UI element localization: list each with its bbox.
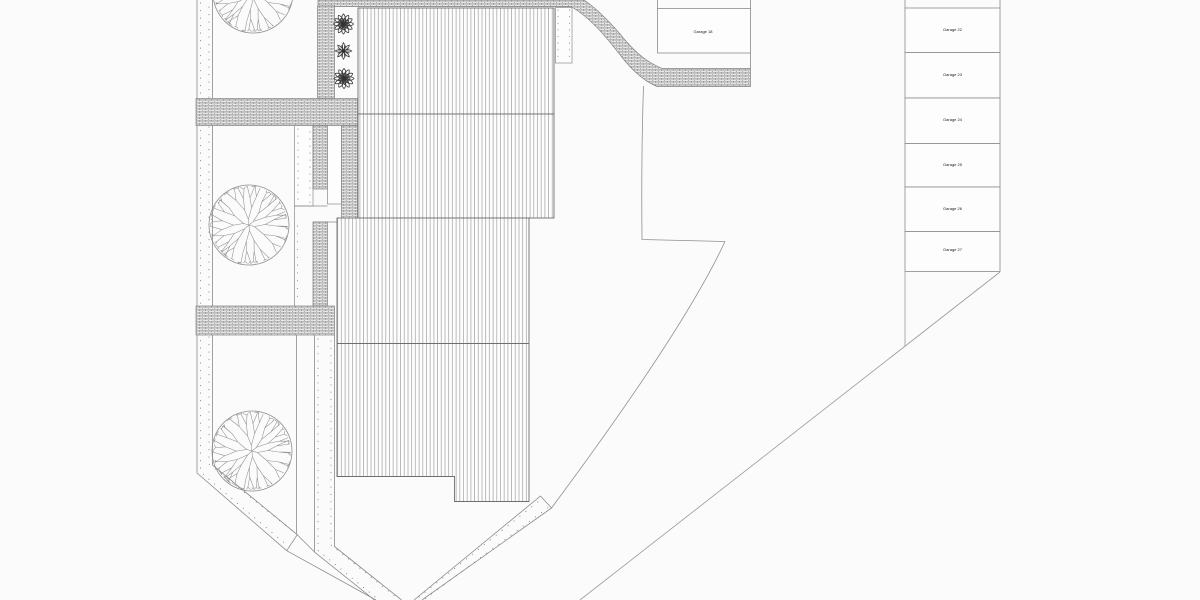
- svg-text:Garage 22: Garage 22: [943, 27, 963, 32]
- svg-text:Garage 24: Garage 24: [943, 117, 963, 122]
- svg-text:Garage 23: Garage 23: [943, 72, 963, 77]
- svg-text:Garage 27: Garage 27: [943, 247, 963, 252]
- svg-text:Garage 26: Garage 26: [943, 206, 963, 211]
- svg-text:Garage 25: Garage 25: [943, 162, 963, 167]
- svg-text:Garage 18: Garage 18: [694, 29, 714, 34]
